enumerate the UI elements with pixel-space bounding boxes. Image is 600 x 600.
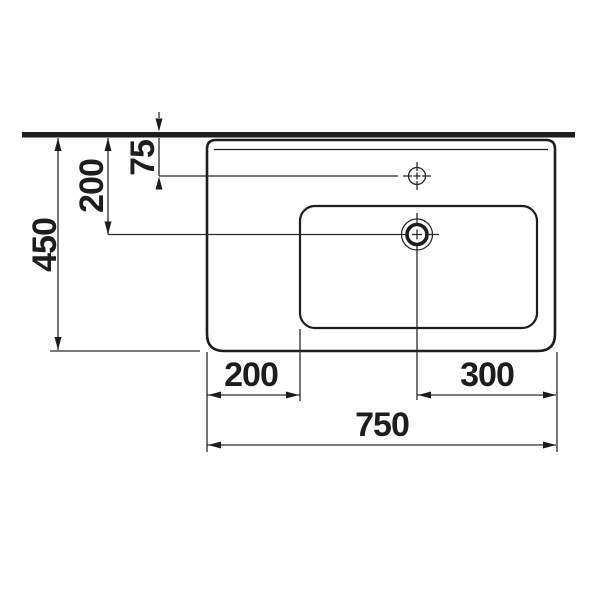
dim-label-75: 75 <box>124 140 162 176</box>
drawing-canvas: 450 200 75 200 <box>0 0 600 600</box>
dim-300-arrow-left <box>418 392 431 399</box>
basin-outline <box>207 140 555 351</box>
dim-75-arrow-down <box>156 119 163 132</box>
dim-750-arrow-left <box>208 442 221 449</box>
dim-label-300: 300 <box>460 356 514 394</box>
dim-drain-to-right: 300 <box>417 356 556 398</box>
dim-total-depth: 450 <box>26 138 200 351</box>
dim-750-arrow-right <box>543 442 556 449</box>
wall-line <box>22 132 575 138</box>
dim-wall-to-tap: 75 <box>124 112 398 190</box>
dim-450-arrow-up <box>55 138 62 151</box>
dim-left-to-bowl: 200 <box>207 356 300 398</box>
dim-total-width: 750 <box>207 406 556 448</box>
dim-label-200-horizontal: 200 <box>224 356 278 394</box>
dim-75-arrow-up <box>156 177 163 190</box>
washbasin-technical-drawing: 450 200 75 200 <box>0 0 600 600</box>
dim-label-750: 750 <box>355 406 409 444</box>
dim-200h-arrow-left <box>208 392 221 399</box>
tap-hole <box>403 162 431 190</box>
dim-200h-arrow-right <box>286 392 299 399</box>
dim-450-arrow-down <box>55 337 62 350</box>
dim-200v-arrow-up <box>105 138 112 151</box>
drain <box>402 213 440 400</box>
dim-200v-arrow-down <box>105 222 112 235</box>
dim-label-450: 450 <box>26 218 64 272</box>
dim-300-arrow-right <box>543 392 556 399</box>
dim-label-200-vertical: 200 <box>73 159 111 213</box>
dim-wall-to-drain: 200 <box>73 138 406 235</box>
